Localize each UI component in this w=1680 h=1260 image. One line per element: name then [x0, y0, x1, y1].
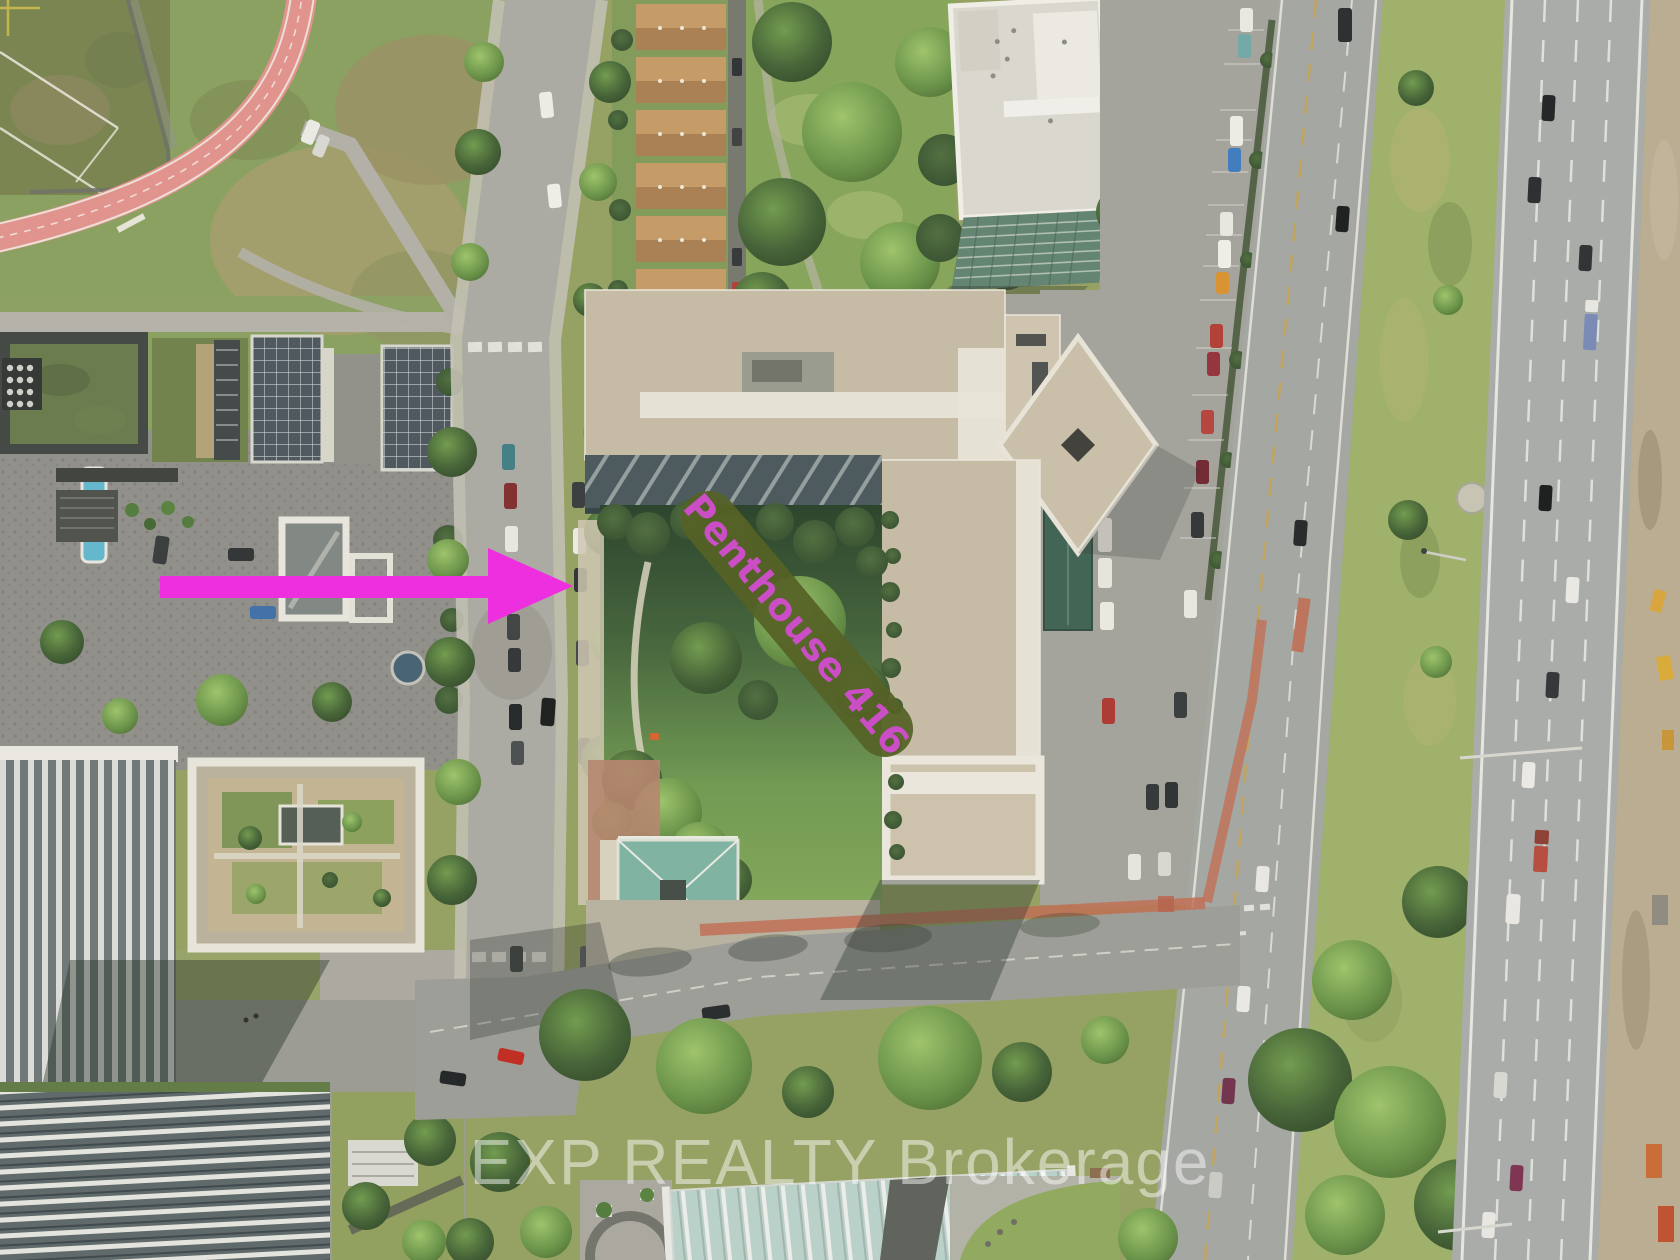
aerial-photo: Penthouse 416 EXP REALTY Brokerage [0, 0, 1680, 1260]
photo-tint-overlay [0, 0, 1680, 1260]
brokerage-watermark: EXP REALTY Brokerage [470, 1126, 1211, 1198]
aerial-photo-canvas: Penthouse 416 EXP REALTY Brokerage [0, 0, 1680, 1260]
